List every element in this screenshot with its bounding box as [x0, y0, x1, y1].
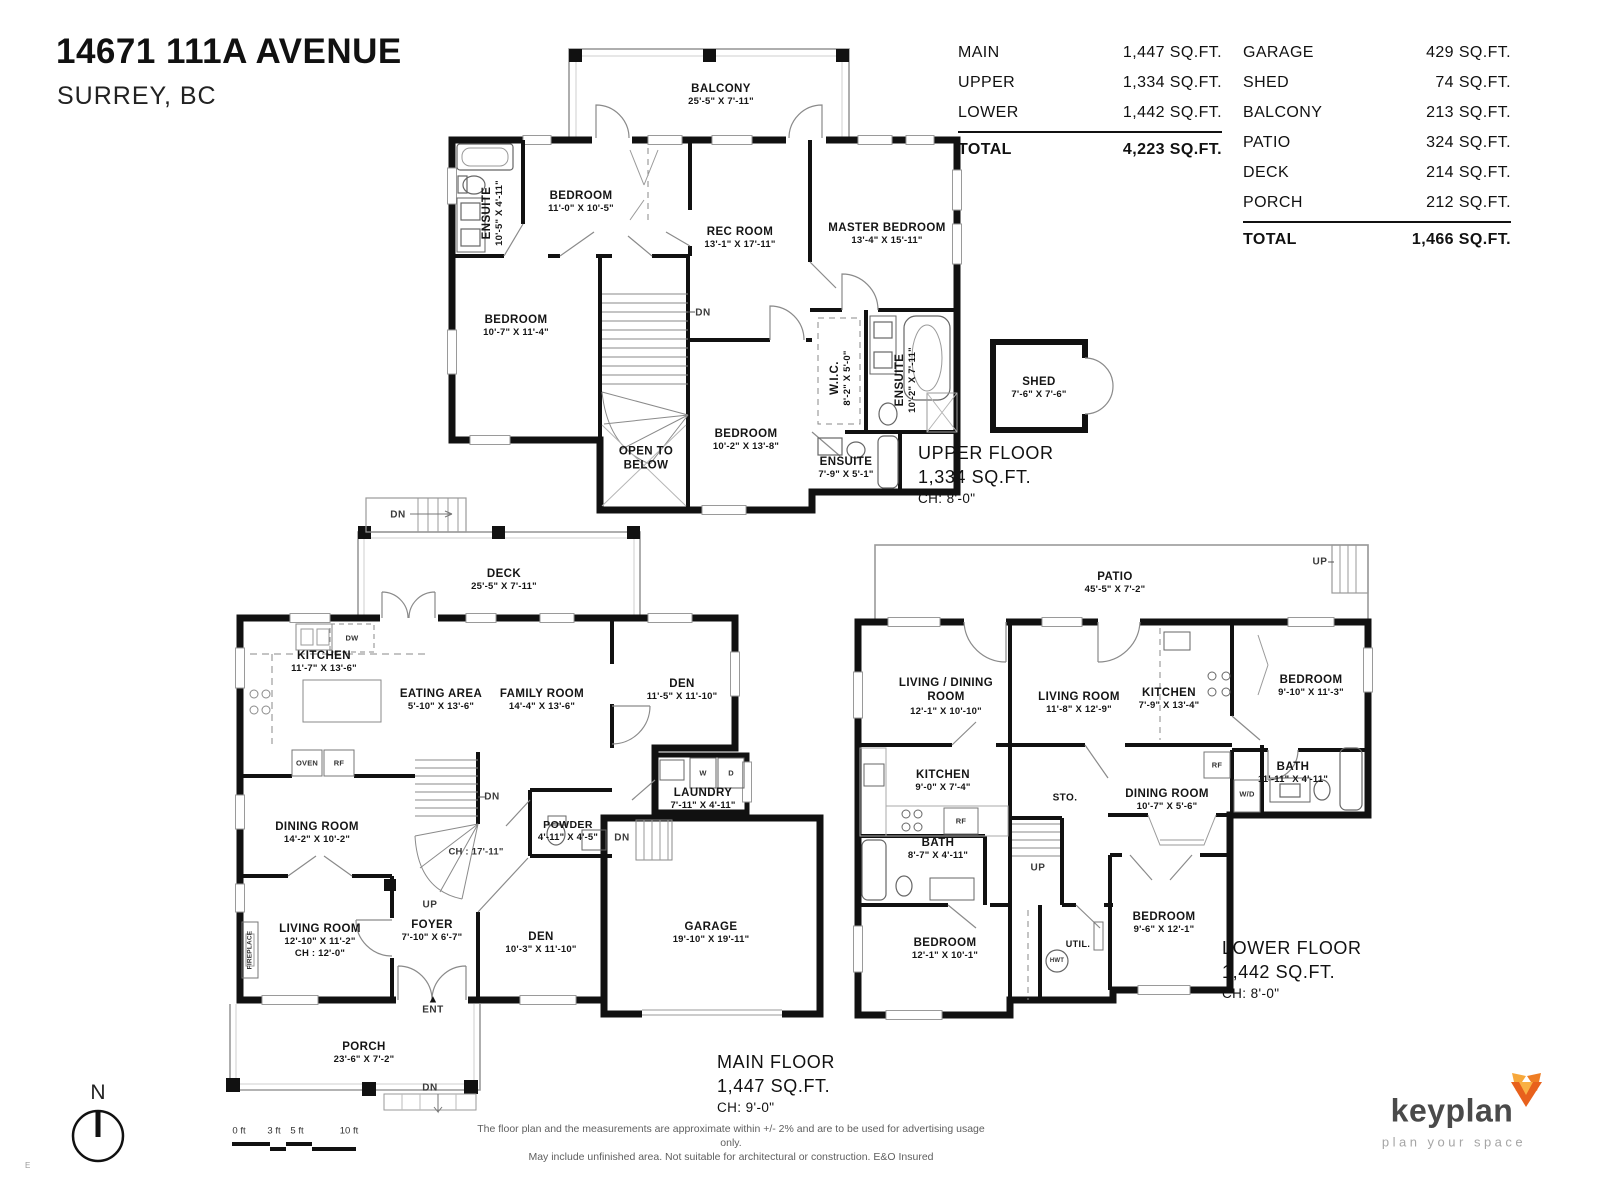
table-total-row: TOTAL4,223 SQ.FT. [958, 133, 1222, 165]
room-label-kitchen-lower-1: KITCHEN7'-9" X 13'-4" [1139, 687, 1200, 711]
room-label-living-room-main: LIVING ROOM12'-10" X 11'-2"CH : 12'-0" [279, 923, 361, 959]
stairs-up-label-main: UP [423, 900, 438, 911]
floorplan-page: 14671 111A AVENUE SURREY, BC MAIN1,447 S… [0, 0, 1600, 1200]
room-label-bedroom-upper-3: BEDROOM10'-2" X 13'-8" [713, 428, 779, 452]
fireplace-label: FIREPLACE [247, 931, 254, 970]
room-label-porch: PORCH23'-6" X 7'-2" [334, 1041, 395, 1065]
room-label-eating-area: EATING AREA5'-10" X 13'-6" [400, 688, 482, 712]
scale-tick: 0 ft [232, 1126, 245, 1137]
hot-water-tank-label: HWT [1050, 958, 1064, 964]
room-label-balcony: BALCONY25'-5" X 7'-11" [688, 83, 754, 107]
edge-mark: E [25, 1161, 30, 1170]
room-label-living-room-lower: LIVING ROOM11'-8" X 12'-9" [1038, 691, 1120, 715]
stairs-up-label-lower: UP [1031, 863, 1046, 874]
room-label-rec-room: REC ROOM13'-1" X 17'-11" [704, 226, 775, 250]
stairs-down-label-garage: DN [614, 833, 629, 844]
stairs-down-label-upper: DN [695, 308, 710, 319]
room-label-bedroom-upper-1: BEDROOM11'-0" X 10'-5" [548, 190, 614, 214]
table-row: MAIN1,447 SQ.FT. [958, 38, 1222, 68]
fridge-label-lower-1: RF [1212, 761, 1222, 770]
room-label-living-dining: LIVING / DINING ROOM12'-1" X 10'-10" [887, 677, 1005, 717]
room-label-kitchen-main: KITCHEN11'-7" X 13'-6" [291, 650, 357, 674]
table-row: UPPER1,334 SQ.FT. [958, 68, 1222, 98]
room-label-bath-lower-2: BATH8'-7" X 4'-11" [908, 837, 968, 861]
room-label-shed: SHED7'-6" X 7'-6" [1011, 376, 1066, 400]
room-label-open-to-below: OPEN TO BELOW [604, 445, 688, 474]
room-label-bedroom-lower-3: BEDROOM9'-6" X 12'-1" [1133, 911, 1196, 935]
table-row: BALCONY213 SQ.FT. [1243, 98, 1511, 128]
room-label-den-main-2: DEN10'-3" X 11'-10" [505, 931, 576, 955]
room-label-kitchen-lower-2: KITCHEN9'-0" X 7'-4" [915, 769, 970, 793]
room-label-powder: POWDER4'-11" X 4'-5" [538, 819, 598, 843]
table-row: PATIO324 SQ.FT. [1243, 128, 1511, 158]
room-label-bedroom-lower-1: BEDROOM9'-10" X 11'-3" [1278, 674, 1344, 698]
stairs-down-label-deck: DN [390, 510, 405, 521]
room-label-bedroom-lower-2: BEDROOM12'-1" X 10'-1" [912, 937, 978, 961]
room-label-storage: STO. [1053, 793, 1078, 804]
room-label-dining-room-main: DINING ROOM14'-2" X 10'-2" [275, 821, 359, 845]
room-label-bedroom-upper-2: BEDROOM10'-7" X 11'-4" [483, 314, 549, 338]
table-row: PORCH212 SQ.FT. [1243, 188, 1511, 218]
oven-label: OVEN [296, 759, 318, 768]
keyplan-logo-text: keyplan [1391, 1093, 1514, 1130]
room-label-laundry: LAUNDRY7'-11" X 4'-11" [670, 787, 735, 811]
scale-tick: 10 ft [340, 1126, 359, 1137]
scale-tick: 5 ft [290, 1126, 303, 1137]
washer-label: W [699, 769, 706, 778]
entrance-arrow-icon: ▲ [428, 995, 439, 1005]
room-label-bath-lower-1: BATH11'-11" X 4'-11" [1258, 761, 1328, 785]
room-label-family-room: FAMILY ROOM14'-4" X 13'-6" [500, 688, 584, 712]
entrance-marker: ▲ENT [422, 995, 444, 1016]
stair-ceiling-height-label: CH : 17'-11" [448, 847, 503, 858]
room-label-master-bedroom: MASTER BEDROOM13'-4" X 15'-11" [828, 222, 945, 246]
dryer-label: D [728, 769, 734, 778]
compass-icon [73, 1111, 123, 1161]
table-row: GARAGE429 SQ.FT. [1243, 38, 1511, 68]
room-label-master-ensuite: ENSUITE10'-2" X 7'-11" [894, 347, 918, 413]
room-label-utility: UTIL. [1066, 939, 1091, 949]
keyplan-tagline: plan your space [1382, 1135, 1526, 1150]
dishwasher-label: DW [346, 634, 359, 643]
washer-dryer-label: W/D [1239, 790, 1254, 799]
table-row: DECK214 SQ.FT. [1243, 158, 1511, 188]
upper-floor-summary: UPPER FLOOR 1,334 SQ.FT. CH: 8'-0" [918, 443, 1054, 506]
fridge-label-main: RF [334, 759, 344, 768]
stairs-up-label-patio: UP [1313, 557, 1328, 568]
scale-tick: 3 ft [267, 1126, 280, 1137]
keyplan-fox-icon [1511, 1073, 1542, 1107]
compass-north-label: N [90, 1081, 105, 1105]
room-label-deck: DECK25'-5" X 7'-11" [471, 568, 537, 592]
disclaimer-text: The floor plan and the measurements are … [471, 1122, 991, 1164]
page-subtitle: SURREY, BC [57, 82, 217, 111]
fridge-label-lower-2: RF [956, 817, 966, 826]
floor-areas-table: MAIN1,447 SQ.FT. UPPER1,334 SQ.FT. LOWER… [958, 38, 1222, 165]
table-row: SHED74 SQ.FT. [1243, 68, 1511, 98]
extra-areas-table: GARAGE429 SQ.FT. SHED74 SQ.FT. BALCONY21… [1243, 38, 1511, 255]
room-label-foyer: FOYER7'-10" X 6'-7" [402, 919, 463, 943]
room-label-dining-room-lower: DINING ROOM10'-7" X 5'-6" [1125, 788, 1209, 812]
table-row: LOWER1,442 SQ.FT. [958, 98, 1222, 128]
room-label-garage: GARAGE19'-10" X 19'-11" [673, 921, 750, 945]
stairs-down-label-porch: DN [422, 1083, 437, 1094]
page-title: 14671 111A AVENUE [56, 32, 402, 72]
room-label-wic: W.I.C.8'-2" X 5'-0" [829, 350, 853, 405]
scale-bar [232, 1142, 356, 1151]
room-label-den-main: DEN11'-5" X 11'-10" [647, 678, 718, 702]
lower-floor-summary: LOWER FLOOR 1,442 SQ.FT. CH: 8'-0" [1222, 938, 1362, 1001]
room-label-ensuite-upper-left: ENSUITE10'-5" X 4'-11" [481, 180, 505, 246]
table-total-row: TOTAL1,466 SQ.FT. [1243, 223, 1511, 255]
room-label-ensuite-upper-3: ENSUITE7'-9" X 5'-1" [818, 456, 873, 480]
room-label-patio: PATIO45'-5" X 7'-2" [1085, 571, 1146, 595]
main-floor-summary: MAIN FLOOR 1,447 SQ.FT. CH: 9'-0" [717, 1052, 835, 1115]
stairs-down-label-main: DN [484, 792, 499, 803]
